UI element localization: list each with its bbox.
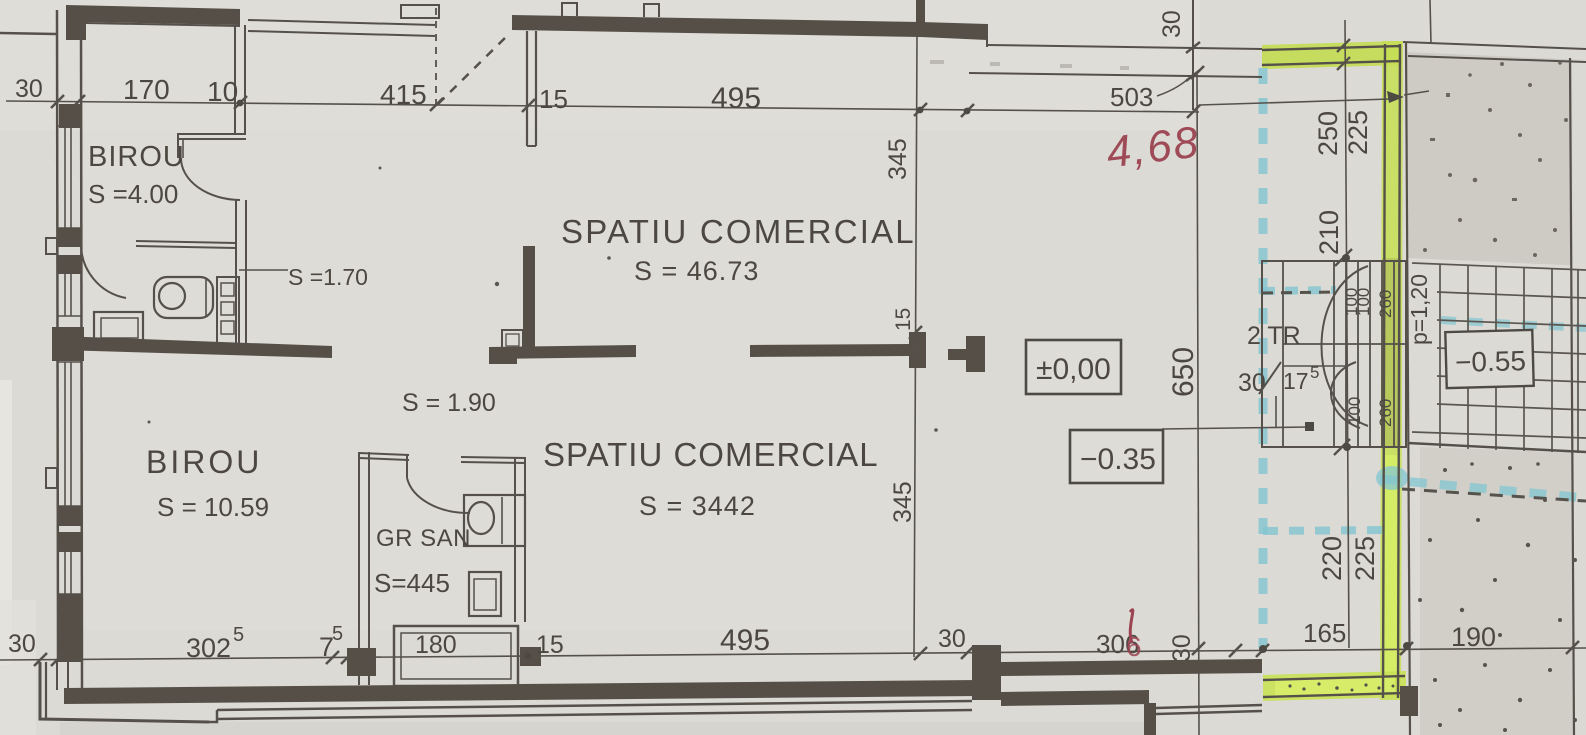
svg-text:495: 495 <box>720 624 770 657</box>
svg-text:2 TR: 2 TR <box>1247 322 1301 350</box>
svg-text:100: 100 <box>1354 288 1373 316</box>
svg-text:S = 3442: S = 3442 <box>639 491 756 521</box>
svg-text:345: 345 <box>884 138 912 180</box>
svg-text:100: 100 <box>1345 397 1364 425</box>
svg-text:10: 10 <box>207 76 238 107</box>
svg-text:165: 165 <box>1303 618 1346 648</box>
svg-text:30: 30 <box>1238 369 1266 397</box>
svg-text:170: 170 <box>123 74 170 105</box>
svg-text:S =4.00: S =4.00 <box>88 179 178 209</box>
svg-text:30: 30 <box>938 625 966 653</box>
svg-text:S =1.70: S =1.70 <box>288 264 368 290</box>
svg-text:−0.55: −0.55 <box>1455 345 1527 378</box>
svg-text:250: 250 <box>1313 111 1343 156</box>
svg-text:302: 302 <box>186 633 231 663</box>
svg-text:S = 10.59: S = 10.59 <box>157 492 269 522</box>
svg-text:5: 5 <box>1310 363 1319 382</box>
svg-text:225: 225 <box>1350 536 1380 581</box>
svg-text:S=445: S=445 <box>374 568 450 598</box>
svg-text:30: 30 <box>15 75 43 103</box>
svg-text:30: 30 <box>8 630 36 658</box>
svg-text:190: 190 <box>1451 622 1496 652</box>
svg-text:260: 260 <box>1376 399 1395 427</box>
svg-text:650: 650 <box>1167 347 1200 397</box>
svg-text:BIROU: BIROU <box>88 141 185 173</box>
svg-text:260: 260 <box>1376 290 1395 318</box>
svg-text:225: 225 <box>1343 110 1373 155</box>
svg-text:−0.35: −0.35 <box>1080 443 1156 476</box>
svg-text:210: 210 <box>1314 210 1344 255</box>
svg-text:GR SAN: GR SAN <box>376 525 471 552</box>
svg-text:495: 495 <box>711 82 761 115</box>
svg-text:30: 30 <box>1168 634 1196 662</box>
svg-text:15: 15 <box>892 308 915 331</box>
svg-text:345: 345 <box>889 481 917 523</box>
svg-text:±0,00: ±0,00 <box>1036 353 1111 386</box>
svg-text:17: 17 <box>1283 368 1309 394</box>
svg-text:S = 46.73: S = 46.73 <box>634 256 759 286</box>
svg-text:415: 415 <box>380 79 427 110</box>
svg-text:S = 1.90: S = 1.90 <box>402 389 496 417</box>
svg-text:30: 30 <box>1158 10 1186 38</box>
svg-text:15: 15 <box>539 84 568 114</box>
svg-text:BIROU: BIROU <box>146 444 262 480</box>
svg-text:p=1,20: p=1,20 <box>1406 274 1432 345</box>
svg-text:5: 5 <box>332 623 343 645</box>
svg-text:SPATIU COMERCIAL: SPATIU COMERCIAL <box>561 213 916 250</box>
svg-text:180: 180 <box>415 631 457 659</box>
svg-text:15: 15 <box>536 631 564 659</box>
svg-text:6: 6 <box>1126 631 1142 662</box>
svg-text:503: 503 <box>1110 82 1153 112</box>
svg-text:SPATIU COMERCIAL: SPATIU COMERCIAL <box>543 436 879 473</box>
svg-text:5: 5 <box>233 624 244 646</box>
svg-text:220: 220 <box>1317 536 1347 581</box>
